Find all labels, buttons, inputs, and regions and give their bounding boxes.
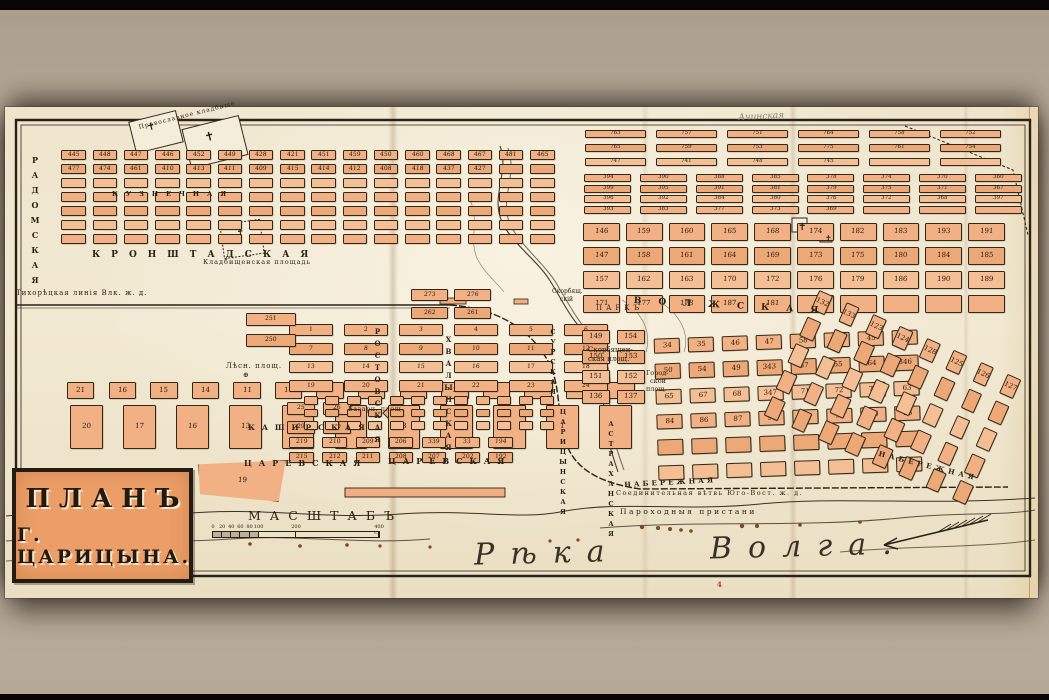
street-label: СУРСКАЯ: [549, 328, 557, 398]
scale-tick-label: 0: [211, 524, 214, 530]
scale-tick: [295, 531, 296, 538]
street-label: ЦАРЕВСКАЯ: [388, 456, 511, 466]
cross-icon: ✝: [236, 228, 245, 239]
scale-tick: [258, 531, 259, 538]
place-label: ской: [650, 377, 666, 385]
poster: { "title": { "line1": "ПЛАНЪ", "line2": …: [0, 0, 1049, 700]
street-label: РОСТОВСКАЯ: [373, 327, 382, 447]
street-label: ВОЛЖСКАЯ: [633, 296, 835, 317]
street-label: НАБЕРЕЖНАЯ: [624, 475, 716, 489]
street-label: АСТРАХАНСКАЯ: [607, 420, 615, 540]
railway-label: Соединительная вѣтвь Юго-Вост. ж. д.: [616, 489, 803, 497]
scale-tick: [239, 531, 240, 538]
place-label: ская площ.: [588, 355, 629, 363]
cross-icon: ✝: [825, 234, 832, 243]
place-label: Скорбящен-: [588, 346, 633, 354]
map-labels-layer: КРОНШТАДСКАЯКУЗНЕЧНАЯРАДОМСКАЯВОЛЖСКАЯНА…: [0, 0, 1049, 700]
place-label: ⊕: [243, 371, 249, 379]
scale-tick-label: 40: [228, 524, 234, 530]
street-label: НАБЕРЕЖНАЯ: [878, 449, 979, 482]
archival-mark: 4: [717, 580, 722, 589]
place-label: Город-: [646, 369, 669, 377]
scale-tick: [230, 531, 231, 538]
title-cartouche: ПЛАНЪ Г. ЦАРИЦЫНА.: [12, 468, 193, 583]
railway-label: Тихорѣцкая линія Влк. ж. д.: [16, 289, 147, 297]
place-label: Кладбищенская площадь: [203, 258, 311, 266]
railway-label: Пароходныя пристани: [620, 507, 757, 516]
scale-tick-label: 60: [237, 524, 243, 530]
scale-tick-label: 400 с.: [374, 524, 384, 536]
scale-tick: [212, 531, 213, 538]
scale-ruler: 020406080100200400 с.: [212, 531, 380, 538]
street-label: ЦАРИЦЫНСКАЯ: [559, 408, 567, 518]
street-label: РАДОМСКАЯ: [30, 155, 40, 290]
map-title-line2: Г. ЦАРИЦЫНА.: [17, 524, 191, 568]
place-label: Базарн. площ.: [348, 405, 404, 413]
place-label: скій: [560, 296, 573, 303]
map-title-line1: ПЛАНЪ: [25, 484, 188, 514]
place-label: площ.: [646, 385, 666, 393]
street-label: КАШИРСКАЯ: [248, 423, 372, 432]
scale-tick: [249, 531, 250, 538]
scale-tick-label: 100: [254, 524, 264, 530]
handwritten-note: Ачинская: [738, 111, 784, 123]
scale-tick: [221, 531, 222, 538]
scale-tick-label: 80: [246, 524, 252, 530]
scale-tick-label: 200: [291, 524, 301, 530]
scale-tick-label: 20: [219, 524, 225, 530]
place-label: Скорбящ.: [552, 288, 583, 295]
scale-title: МАСШТАБЪ: [248, 508, 403, 523]
cross-icon: ✝: [203, 129, 216, 145]
street-label: КУЗНЕЧНАЯ: [112, 190, 234, 198]
place-label: Лѣсн. площ.: [226, 362, 282, 370]
place-label: ПАРКЪ: [596, 304, 643, 312]
street-label: ХВАЛЫНСКАЯ: [444, 335, 453, 455]
cross-icon: ✝: [798, 222, 806, 233]
street-label: ЦАРЕВСКАЯ: [244, 458, 367, 468]
